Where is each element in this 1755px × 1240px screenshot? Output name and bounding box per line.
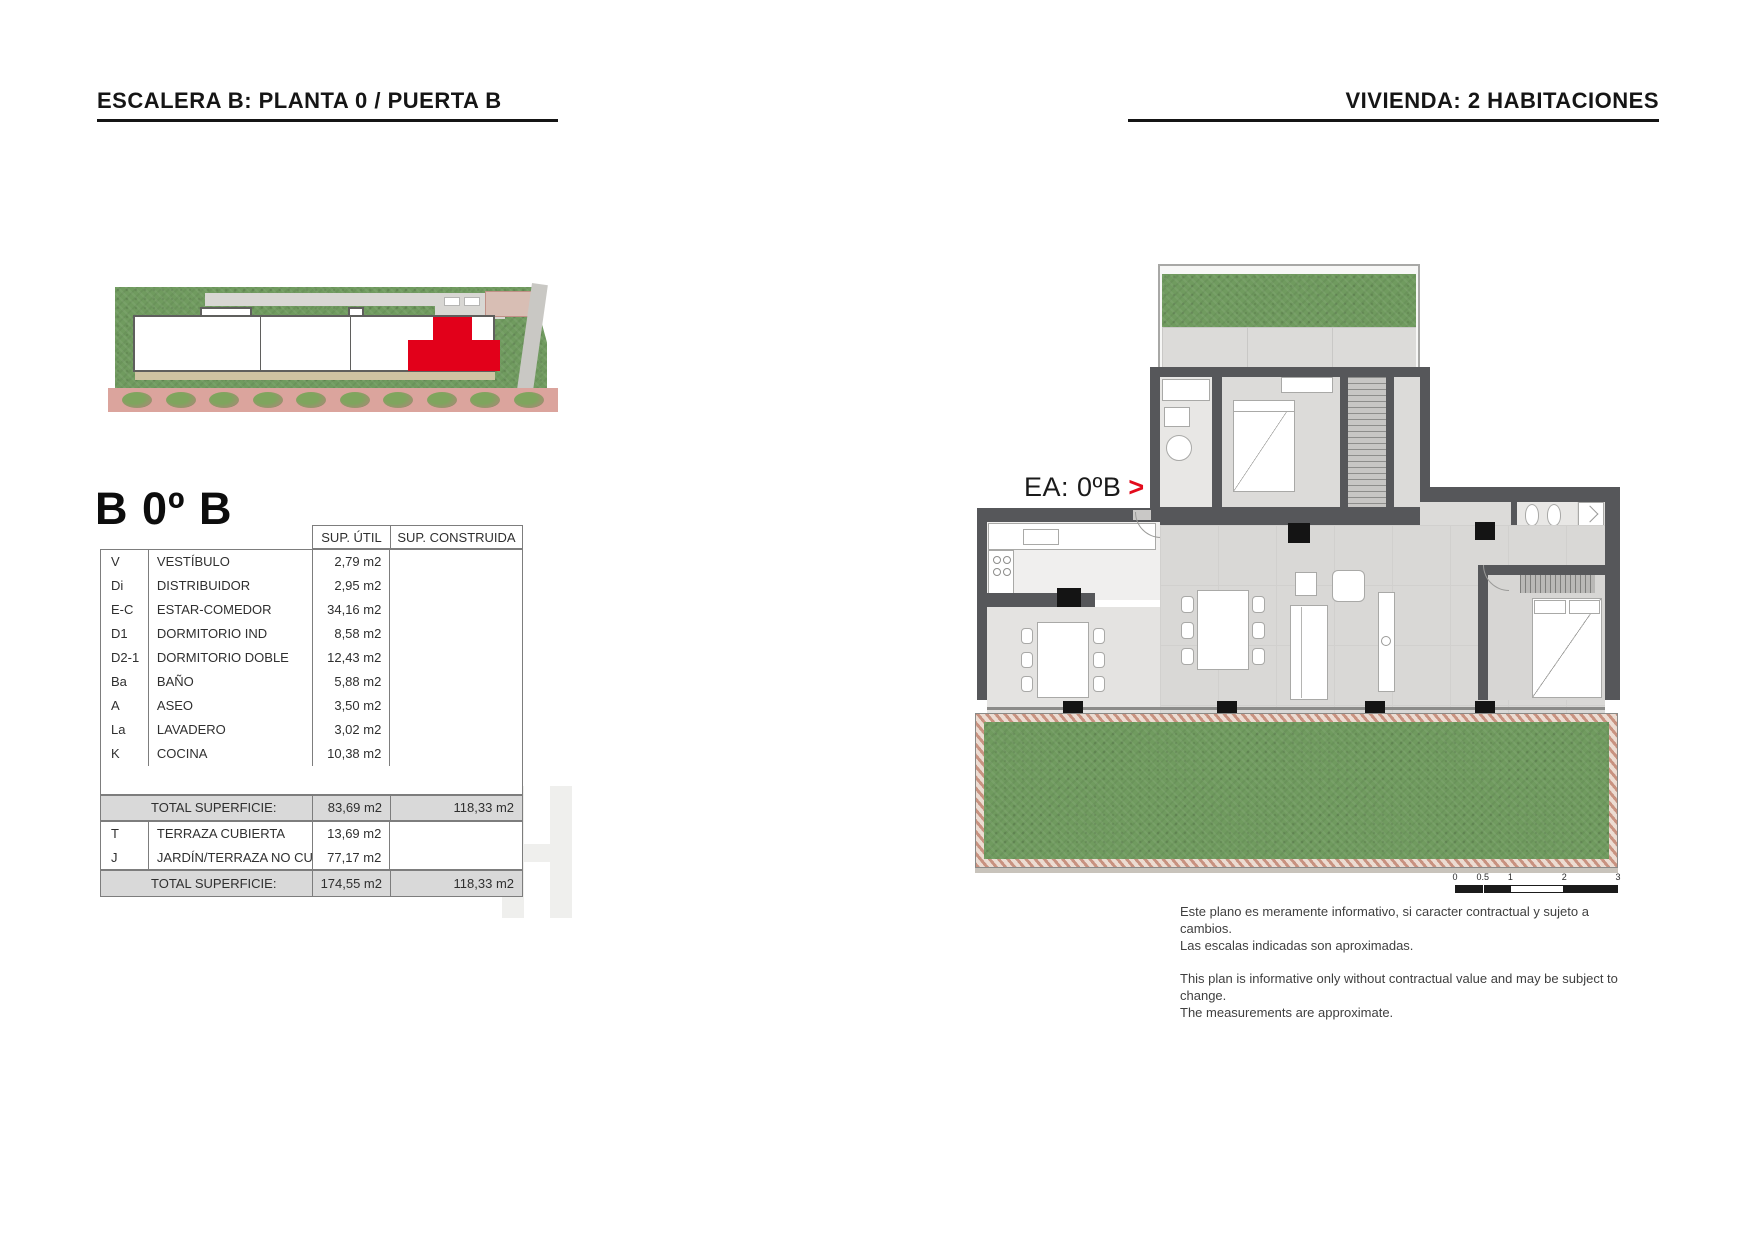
- total-overall-row: TOTAL SUPERFICIE: 174,55 m2 118,33 m2: [100, 870, 523, 897]
- title-underline-right: [1128, 119, 1659, 122]
- scale-segment: [1510, 885, 1564, 893]
- site-plan: [100, 255, 562, 415]
- right-wing-top-wall: [1420, 487, 1620, 502]
- table-cell: A: [101, 694, 149, 718]
- site-parking-slot: [444, 297, 460, 306]
- disclaimer: Este plano es meramente informativo, si …: [1180, 903, 1625, 1021]
- table-cell: TERRAZA CUBIERTA: [149, 822, 313, 846]
- table-cell: 12,43 m2: [313, 646, 391, 670]
- pillar: [1288, 523, 1310, 543]
- col-header-util: SUP. ÚTIL: [312, 525, 391, 549]
- wardrobe: [1281, 377, 1333, 393]
- table-cell: ESTAR-COMEDOR: [149, 598, 313, 622]
- table-row: LaLAVADERO3,02 m2: [101, 718, 522, 742]
- total-label: TOTAL SUPERFICIE:: [101, 796, 313, 820]
- table-cell: Di: [101, 574, 149, 598]
- table-cell: [390, 646, 522, 670]
- table-cell: J: [101, 846, 149, 870]
- single-bed: [1233, 400, 1295, 492]
- table-cell: 5,88 m2: [313, 670, 391, 694]
- garden: [984, 722, 1609, 859]
- table-cell: D2-1: [101, 646, 149, 670]
- table-cell: DORMITORIO IND: [149, 622, 313, 646]
- scale-segment: [1455, 885, 1483, 893]
- table-cell: [390, 718, 522, 742]
- table-cell: [390, 622, 522, 646]
- total-constr: 118,33 m2: [391, 871, 522, 896]
- table-cell: 8,58 m2: [313, 622, 391, 646]
- table-cell: 10,38 m2: [313, 742, 391, 766]
- areas-table: SUP. ÚTIL SUP. CONSTRUIDA VVESTÍBULO2,79…: [100, 525, 524, 897]
- table-exterior-rows: TTERRAZA CUBIERTA13,69 m2JJARDÍN/TERRAZA…: [100, 821, 523, 870]
- sofa: [1290, 605, 1328, 700]
- table-cell: K: [101, 742, 149, 766]
- chair: [1181, 622, 1194, 639]
- page-title-left: ESCALERA B: PLANTA 0 / PUERTA B: [97, 88, 502, 114]
- hall-nook: [1394, 377, 1420, 507]
- tree-icon: [296, 392, 326, 408]
- table-cell: La: [101, 718, 149, 742]
- table-cell: [390, 574, 522, 598]
- table-cell: DORMITORIO DOBLE: [149, 646, 313, 670]
- table-row: AASEO3,50 m2: [101, 694, 522, 718]
- table-cell: JARDÍN/TERRAZA NO CUB.: [149, 846, 313, 870]
- table-cell: [390, 598, 522, 622]
- chair: [1252, 648, 1265, 665]
- washer: [1164, 407, 1190, 427]
- top-garden: [1162, 274, 1416, 327]
- right-outer-wall: [1605, 487, 1620, 700]
- table-cell: 2,79 m2: [313, 550, 391, 574]
- wardrobe: [1520, 575, 1595, 593]
- col-header-constr: SUP. CONSTRUIDA: [390, 525, 523, 549]
- chair: [1093, 628, 1105, 644]
- table-cell: [390, 550, 522, 574]
- hob-burner-icon: [993, 556, 1001, 564]
- table-cell: 34,16 m2: [313, 598, 391, 622]
- tree-icon: [122, 392, 152, 408]
- disclaimer-es-line1: Este plano es meramente informativo, si …: [1180, 903, 1625, 937]
- scale-bar-segments: [1455, 885, 1618, 893]
- garden-ground-shadow: [975, 868, 1618, 873]
- table-cell: 2,95 m2: [313, 574, 391, 598]
- table-row: D1DORMITORIO IND8,58 m2: [101, 622, 522, 646]
- table-row: JJARDÍN/TERRAZA NO CUB.77,17 m2: [101, 846, 522, 870]
- table-cell: 3,50 m2: [313, 694, 391, 718]
- title-underline-left: [97, 119, 558, 122]
- table-cell: E-C: [101, 598, 149, 622]
- toilet: [1525, 504, 1539, 526]
- unit-plan-label-text: EA: 0ºB: [1024, 472, 1121, 502]
- scale-bar: 00.5123: [1455, 872, 1618, 894]
- pillar: [1057, 588, 1081, 608]
- tree-icon: [427, 392, 457, 408]
- tree-icon: [166, 392, 196, 408]
- table-cell: 3,02 m2: [313, 718, 391, 742]
- toilet: [1166, 435, 1192, 461]
- kitchen-sink: [1023, 529, 1059, 545]
- stairs: [1348, 377, 1386, 507]
- floor-plan: [975, 260, 1620, 875]
- disclaimer-es-line2: Las escalas indicadas son aproximadas.: [1180, 937, 1625, 954]
- disclaimer-spacer: [1180, 954, 1625, 970]
- tree-icon: [514, 392, 544, 408]
- armchair: [1332, 570, 1365, 602]
- tree-icon: [340, 392, 370, 408]
- pillar: [1475, 522, 1495, 540]
- table-cell: V: [101, 550, 149, 574]
- chair: [1021, 676, 1033, 692]
- chair: [1093, 652, 1105, 668]
- hob-burner-icon: [993, 568, 1001, 576]
- total-interior-row: TOTAL SUPERFICIE: 83,69 m2 118,33 m2: [100, 795, 523, 821]
- bidet: [1547, 504, 1561, 526]
- table-cell: 13,69 m2: [313, 822, 391, 846]
- table-cell: ASEO: [149, 694, 313, 718]
- top-terrace-floor: [1162, 327, 1416, 369]
- sofa-cushion-line: [1301, 607, 1302, 698]
- tree-icon: [209, 392, 239, 408]
- table-cell: Ba: [101, 670, 149, 694]
- plan-sheet: ESCALERA B: PLANTA 0 / PUERTA B VIVIENDA…: [0, 0, 1755, 1240]
- outdoor-table: [1037, 622, 1089, 698]
- table-row: D2-1DORMITORIO DOBLE12,43 m2: [101, 646, 522, 670]
- table-cell: D1: [101, 622, 149, 646]
- total-label: TOTAL SUPERFICIE:: [101, 871, 313, 896]
- table-row: DiDISTRIBUIDOR2,95 m2: [101, 574, 522, 598]
- tree-icon: [253, 392, 283, 408]
- hob-burner-icon: [1003, 556, 1011, 564]
- table-cell: 77,17 m2: [313, 846, 391, 870]
- chair: [1181, 648, 1194, 665]
- table-cell: VESTÍBULO: [149, 550, 313, 574]
- scale-segment: [1564, 885, 1618, 893]
- table-room-rows: VVESTÍBULO2,79 m2DiDISTRIBUIDOR2,95 m2E-…: [100, 549, 523, 795]
- table-cell: BAÑO: [149, 670, 313, 694]
- table-cell: COCINA: [149, 742, 313, 766]
- page-title-right: VIVIENDA: 2 HABITACIONES: [1345, 88, 1659, 114]
- chair: [1252, 596, 1265, 613]
- kitchen-counter: [988, 523, 1156, 550]
- table-cell: T: [101, 822, 149, 846]
- site-tree-row: [108, 388, 558, 412]
- table-row: KCOCINA10,38 m2: [101, 742, 522, 766]
- red-arrow-icon: >: [1128, 472, 1144, 502]
- tv-console-knob-icon: [1381, 636, 1391, 646]
- tree-icon: [470, 392, 500, 408]
- dining-table: [1197, 590, 1249, 670]
- tree-icon: [383, 392, 413, 408]
- table-row: BaBAÑO5,88 m2: [101, 670, 522, 694]
- chair: [1021, 628, 1033, 644]
- total-constr: 118,33 m2: [391, 796, 522, 820]
- site-parking-slot: [464, 297, 480, 306]
- single-bed-pillow: [1233, 400, 1295, 412]
- table-cell: DISTRIBUIDOR: [149, 574, 313, 598]
- table-cell: LAVADERO: [149, 718, 313, 742]
- disclaimer-en-line1: This plan is informative only without co…: [1180, 970, 1625, 1004]
- unit-plan-label: EA: 0ºB>: [1024, 472, 1145, 503]
- table-cell: [390, 822, 522, 846]
- site-building-divider: [350, 316, 351, 371]
- chair: [1252, 622, 1265, 639]
- chair: [1021, 652, 1033, 668]
- table-cell: [390, 694, 522, 718]
- table-row: VVESTÍBULO2,79 m2: [101, 550, 522, 574]
- site-building-divider: [260, 316, 261, 371]
- table-cell: [390, 742, 522, 766]
- pillow: [1534, 600, 1566, 614]
- hob-burner-icon: [1003, 568, 1011, 576]
- site-highlighted-unit: [433, 317, 472, 341]
- pillow: [1569, 600, 1600, 614]
- total-util: 83,69 m2: [313, 796, 391, 820]
- bathroom-sink: [1162, 379, 1210, 401]
- bedroom-wall: [1478, 565, 1488, 700]
- chair: [1093, 676, 1105, 692]
- table-row: E-CESTAR-COMEDOR34,16 m2: [101, 598, 522, 622]
- total-util: 174,55 m2: [313, 871, 391, 896]
- site-path-strip: [135, 372, 495, 380]
- table-row: TTERRAZA CUBIERTA13,69 m2: [101, 822, 522, 846]
- side-table: [1295, 572, 1317, 596]
- table-cell: [390, 670, 522, 694]
- table-cell: [390, 846, 522, 870]
- disclaimer-en-line2: The measurements are approximate.: [1180, 1004, 1625, 1021]
- site-highlighted-unit: [408, 340, 500, 371]
- garden-border: [975, 713, 1618, 868]
- scale-segment: [1483, 885, 1510, 893]
- chair: [1181, 596, 1194, 613]
